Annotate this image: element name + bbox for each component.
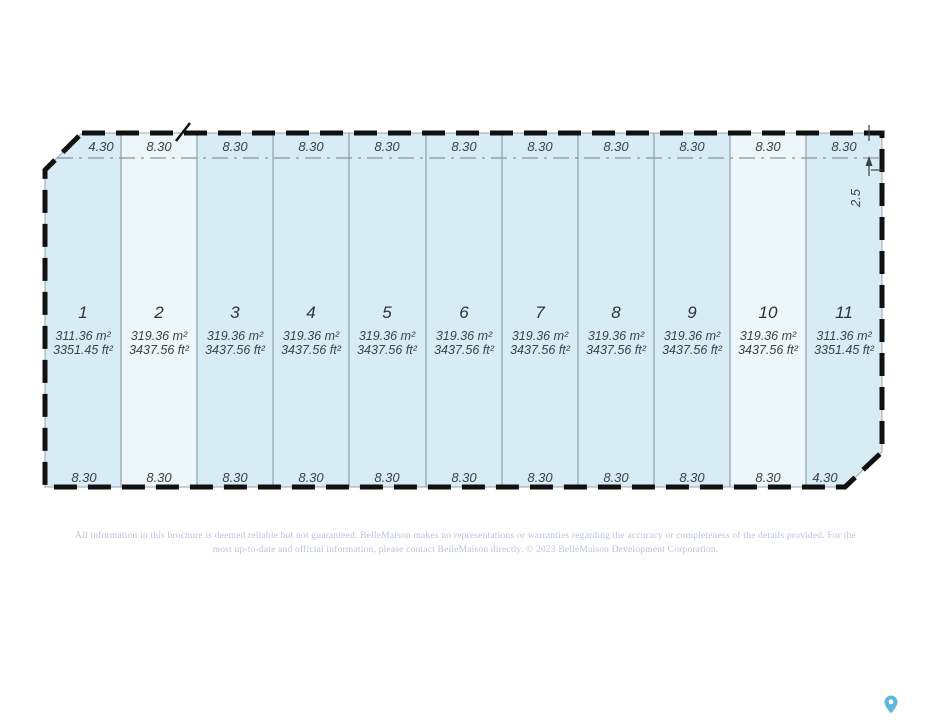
lot-top-dim: 8.30	[146, 139, 172, 154]
lot-number: 1	[78, 303, 87, 322]
lot-area-ft2: 3437.56 ft²	[510, 343, 571, 357]
lot-area-m2: 319.36 m²	[740, 329, 797, 343]
lot-area-m2: 319.36 m²	[207, 329, 264, 343]
lot-top-dim: 8.30	[451, 139, 477, 154]
lot-area-ft2: 3437.56 ft²	[357, 343, 418, 357]
lot-bottom-dim: 8.30	[755, 470, 781, 485]
pin-center-dot	[889, 699, 894, 704]
lot-number: 7	[535, 303, 545, 322]
lot-number: 4	[306, 303, 315, 322]
lot-area-ft2: 3437.56 ft²	[434, 343, 495, 357]
pin-body	[885, 696, 898, 714]
subdivision-plan: 2.5 4.30 1 311.36 m² 3351.45 ft² 8.30 8.…	[0, 0, 931, 720]
disclaimer: All information in this brochure is deem…	[0, 529, 931, 557]
lot-area-m2: 311.36 m²	[816, 329, 872, 343]
lot-top-dim: 4.30	[88, 139, 114, 154]
map-pin-icon	[884, 695, 898, 714]
lot-area-ft2: 3351.45 ft²	[53, 343, 114, 357]
lot-bottom-dim: 4.30	[812, 470, 838, 485]
lot-bottom-dim: 8.30	[679, 470, 705, 485]
lot-area-m2: 319.36 m²	[512, 329, 569, 343]
lot-bottom-dim: 8.30	[71, 470, 97, 485]
setback-dim-label: 2.5	[848, 188, 863, 208]
lot-top-dim: 8.30	[755, 139, 781, 154]
lot-top-dim: 8.30	[603, 139, 629, 154]
lot-plan-page: 2.5 4.30 1 311.36 m² 3351.45 ft² 8.30 8.…	[0, 0, 931, 720]
lot-number: 3	[230, 303, 240, 322]
disclaimer-line-2: most up-to-date and official information…	[0, 543, 931, 557]
lot-area-ft2: 3437.56 ft²	[129, 343, 190, 357]
lot-area-m2: 319.36 m²	[664, 329, 721, 343]
lot-bottom-dim: 8.30	[146, 470, 172, 485]
lot-number: 5	[382, 303, 392, 322]
lot-area-ft2: 3437.56 ft²	[738, 343, 799, 357]
lot-top-dim: 8.30	[527, 139, 553, 154]
lot-top-dim: 8.30	[222, 139, 248, 154]
lot-area-ft2: 3437.56 ft²	[205, 343, 266, 357]
lot-area-m2: 319.36 m²	[359, 329, 416, 343]
lot-area-ft2: 3437.56 ft²	[662, 343, 723, 357]
lot-bottom-dim: 8.30	[527, 470, 553, 485]
lot-area-m2: 319.36 m²	[131, 329, 188, 343]
lot-top-dim: 8.30	[679, 139, 705, 154]
lot-area-ft2: 3437.56 ft²	[586, 343, 647, 357]
lot-bottom-dim: 8.30	[298, 470, 324, 485]
lot-area-ft2: 3351.45 ft²	[814, 343, 875, 357]
lot-top-dim: 8.30	[298, 139, 324, 154]
lot-number: 10	[759, 303, 778, 322]
lot-bottom-dim: 8.30	[222, 470, 248, 485]
lot-number: 6	[459, 303, 469, 322]
lot-bottom-dim: 8.30	[374, 470, 400, 485]
disclaimer-line-1: All information in this brochure is deem…	[0, 529, 931, 543]
lot-bottom-dim: 8.30	[603, 470, 629, 485]
lot-area-m2: 319.36 m²	[283, 329, 340, 343]
lot-top-dim: 8.30	[374, 139, 400, 154]
lot-number: 2	[153, 303, 164, 322]
lot-number: 9	[687, 303, 697, 322]
lot-number: 11	[835, 303, 853, 322]
lot-area-m2: 311.36 m²	[55, 329, 111, 343]
lot-area-m2: 319.36 m²	[436, 329, 493, 343]
lot-number: 8	[611, 303, 621, 322]
lot-area-m2: 319.36 m²	[588, 329, 645, 343]
lot-bottom-dim: 8.30	[451, 470, 477, 485]
lot-area-ft2: 3437.56 ft²	[281, 343, 342, 357]
lot-top-dim: 8.30	[831, 139, 857, 154]
